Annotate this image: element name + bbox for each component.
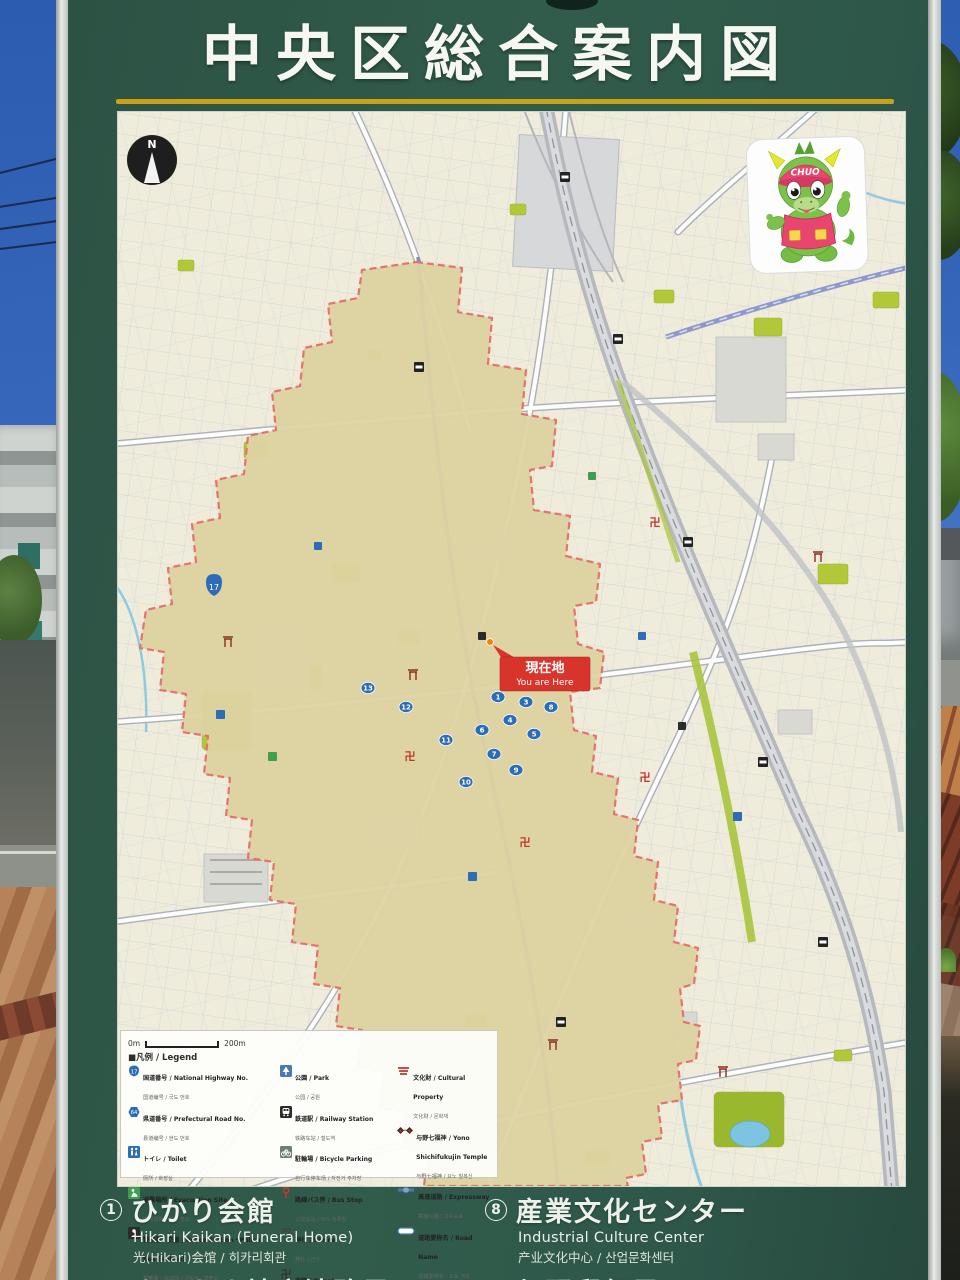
green-sign-board: 中央区総合案内図: [68, 0, 928, 1280]
cultural-property-icon: [397, 1065, 410, 1077]
svg-text:N: N: [147, 138, 156, 151]
svg-text:9: 9: [514, 767, 519, 775]
svg-text:11: 11: [441, 737, 451, 745]
item-number-badge: 8: [485, 1199, 507, 1221]
svg-text:8: 8: [549, 704, 554, 712]
legend-item: 鉄道駅 / Railway Station铁路车站 / 철도역: [280, 1106, 392, 1144]
map-legend: 0m 200m ■凡例 / Legend 17 国道番号 / National …: [120, 1030, 498, 1178]
svg-text:現在地: 現在地: [525, 660, 564, 676]
scale-start-label: 0m: [128, 1039, 140, 1048]
svg-text:3: 3: [524, 699, 529, 707]
svg-text:17: 17: [209, 583, 219, 592]
directory-item: 9 与野郵便局 Yono Post Office: [485, 1271, 860, 1280]
national-highway-icon: 17: [128, 1065, 140, 1077]
prefectural-road-icon: 64: [128, 1106, 140, 1118]
scale-bar: 0m 200m: [128, 1036, 490, 1048]
directory-item: 1 ひかり会館 Hikari Kaikan (Funeral Home) 光(H…: [100, 1190, 475, 1266]
item-name-jp: さいたま地方法務局: [131, 1271, 391, 1280]
toilet-icon: [128, 1146, 140, 1158]
sign-title: 中央区総合案内図: [68, 6, 928, 93]
scale-end-label: 200m: [224, 1039, 246, 1048]
directory-item: 8 産業文化センター Industrial Culture Center 产业文…: [485, 1190, 860, 1266]
legend-item: 与野七福神 / Yono Shichifukujin Temple与野七福神 /…: [397, 1125, 490, 1182]
svg-text:卍: 卍: [520, 836, 531, 849]
svg-text:4: 4: [508, 717, 513, 725]
svg-text:13: 13: [363, 685, 373, 693]
item-name-en: Industrial Culture Center: [518, 1230, 860, 1246]
mascot-cap-text: CHUO: [790, 167, 820, 178]
svg-text:17: 17: [131, 1069, 138, 1075]
item-number-badge: 1: [100, 1199, 122, 1221]
legend-item: 公園 / Park公园 / 공원: [280, 1065, 392, 1103]
title-underline: [116, 99, 894, 104]
sign-frame-right: [928, 0, 941, 1280]
svg-text:10: 10: [461, 779, 471, 787]
legend-item: 文化財 / Cultural Property文化财 / 문화재: [397, 1065, 490, 1122]
svg-text:卍: 卍: [640, 771, 651, 784]
svg-text:1: 1: [496, 694, 501, 702]
city-map: 卍 卍 卍 卍 17: [118, 112, 905, 1186]
legend-item: トイレ / Toilet厕所 / 화장실: [128, 1146, 275, 1184]
svg-text:You are Here: You are Here: [515, 678, 574, 688]
legend-item: 17 国道番号 / National Highway No.国道编号 / 국도 …: [128, 1065, 275, 1103]
svg-text:64: 64: [131, 1110, 138, 1116]
svg-text:6: 6: [480, 727, 485, 735]
legend-item: 駐輪場 / Bicycle Parking自行车停车场 / 자전거 주차장: [280, 1146, 392, 1184]
photo-of-map-signboard: 中央区総合案内図: [0, 0, 960, 1280]
mascot-vest: [781, 213, 836, 250]
destination-directory: 1 ひかり会館 Hikari Kaikan (Funeral Home) 光(H…: [0, 1186, 960, 1280]
shichifukujin-icon: [397, 1125, 413, 1137]
item-name-jp: 産業文化センター: [516, 1190, 748, 1229]
svg-text:12: 12: [401, 704, 411, 712]
svg-text:卍: 卍: [650, 516, 661, 529]
park-icon: [280, 1065, 292, 1077]
legend-item: 64 県道番号 / Prefectural Road No.县道编号 / 현도 …: [128, 1106, 275, 1144]
directory-item: 2 さいたま地方法務局 Saitama Regional Legal Affai…: [100, 1271, 475, 1280]
item-name-jp: 与野郵便局: [516, 1271, 661, 1280]
map-panel: 卍 卍 卍 卍 17: [118, 112, 905, 1186]
north-arrow: N: [127, 135, 177, 185]
mascot-sticker: CHUO: [746, 136, 869, 274]
svg-text:5: 5: [532, 731, 537, 739]
legend-heading: ■凡例 / Legend: [128, 1051, 490, 1063]
item-name-jp: ひかり会館: [131, 1190, 276, 1229]
railway-station-icon: [280, 1106, 292, 1118]
pond: [730, 1121, 770, 1147]
item-name-en: Hikari Kaikan (Funeral Home): [133, 1230, 475, 1246]
item-name-translations: 光(Hikari)会馆 / 히카리회관: [133, 1247, 475, 1266]
svg-text:7: 7: [492, 751, 497, 759]
bicycle-parking-icon: [280, 1146, 292, 1158]
sign-frame-left: [56, 0, 68, 1280]
svg-text:卍: 卍: [405, 750, 416, 763]
item-name-translations: 产业文化中心 / 산업문화센터: [518, 1247, 860, 1266]
